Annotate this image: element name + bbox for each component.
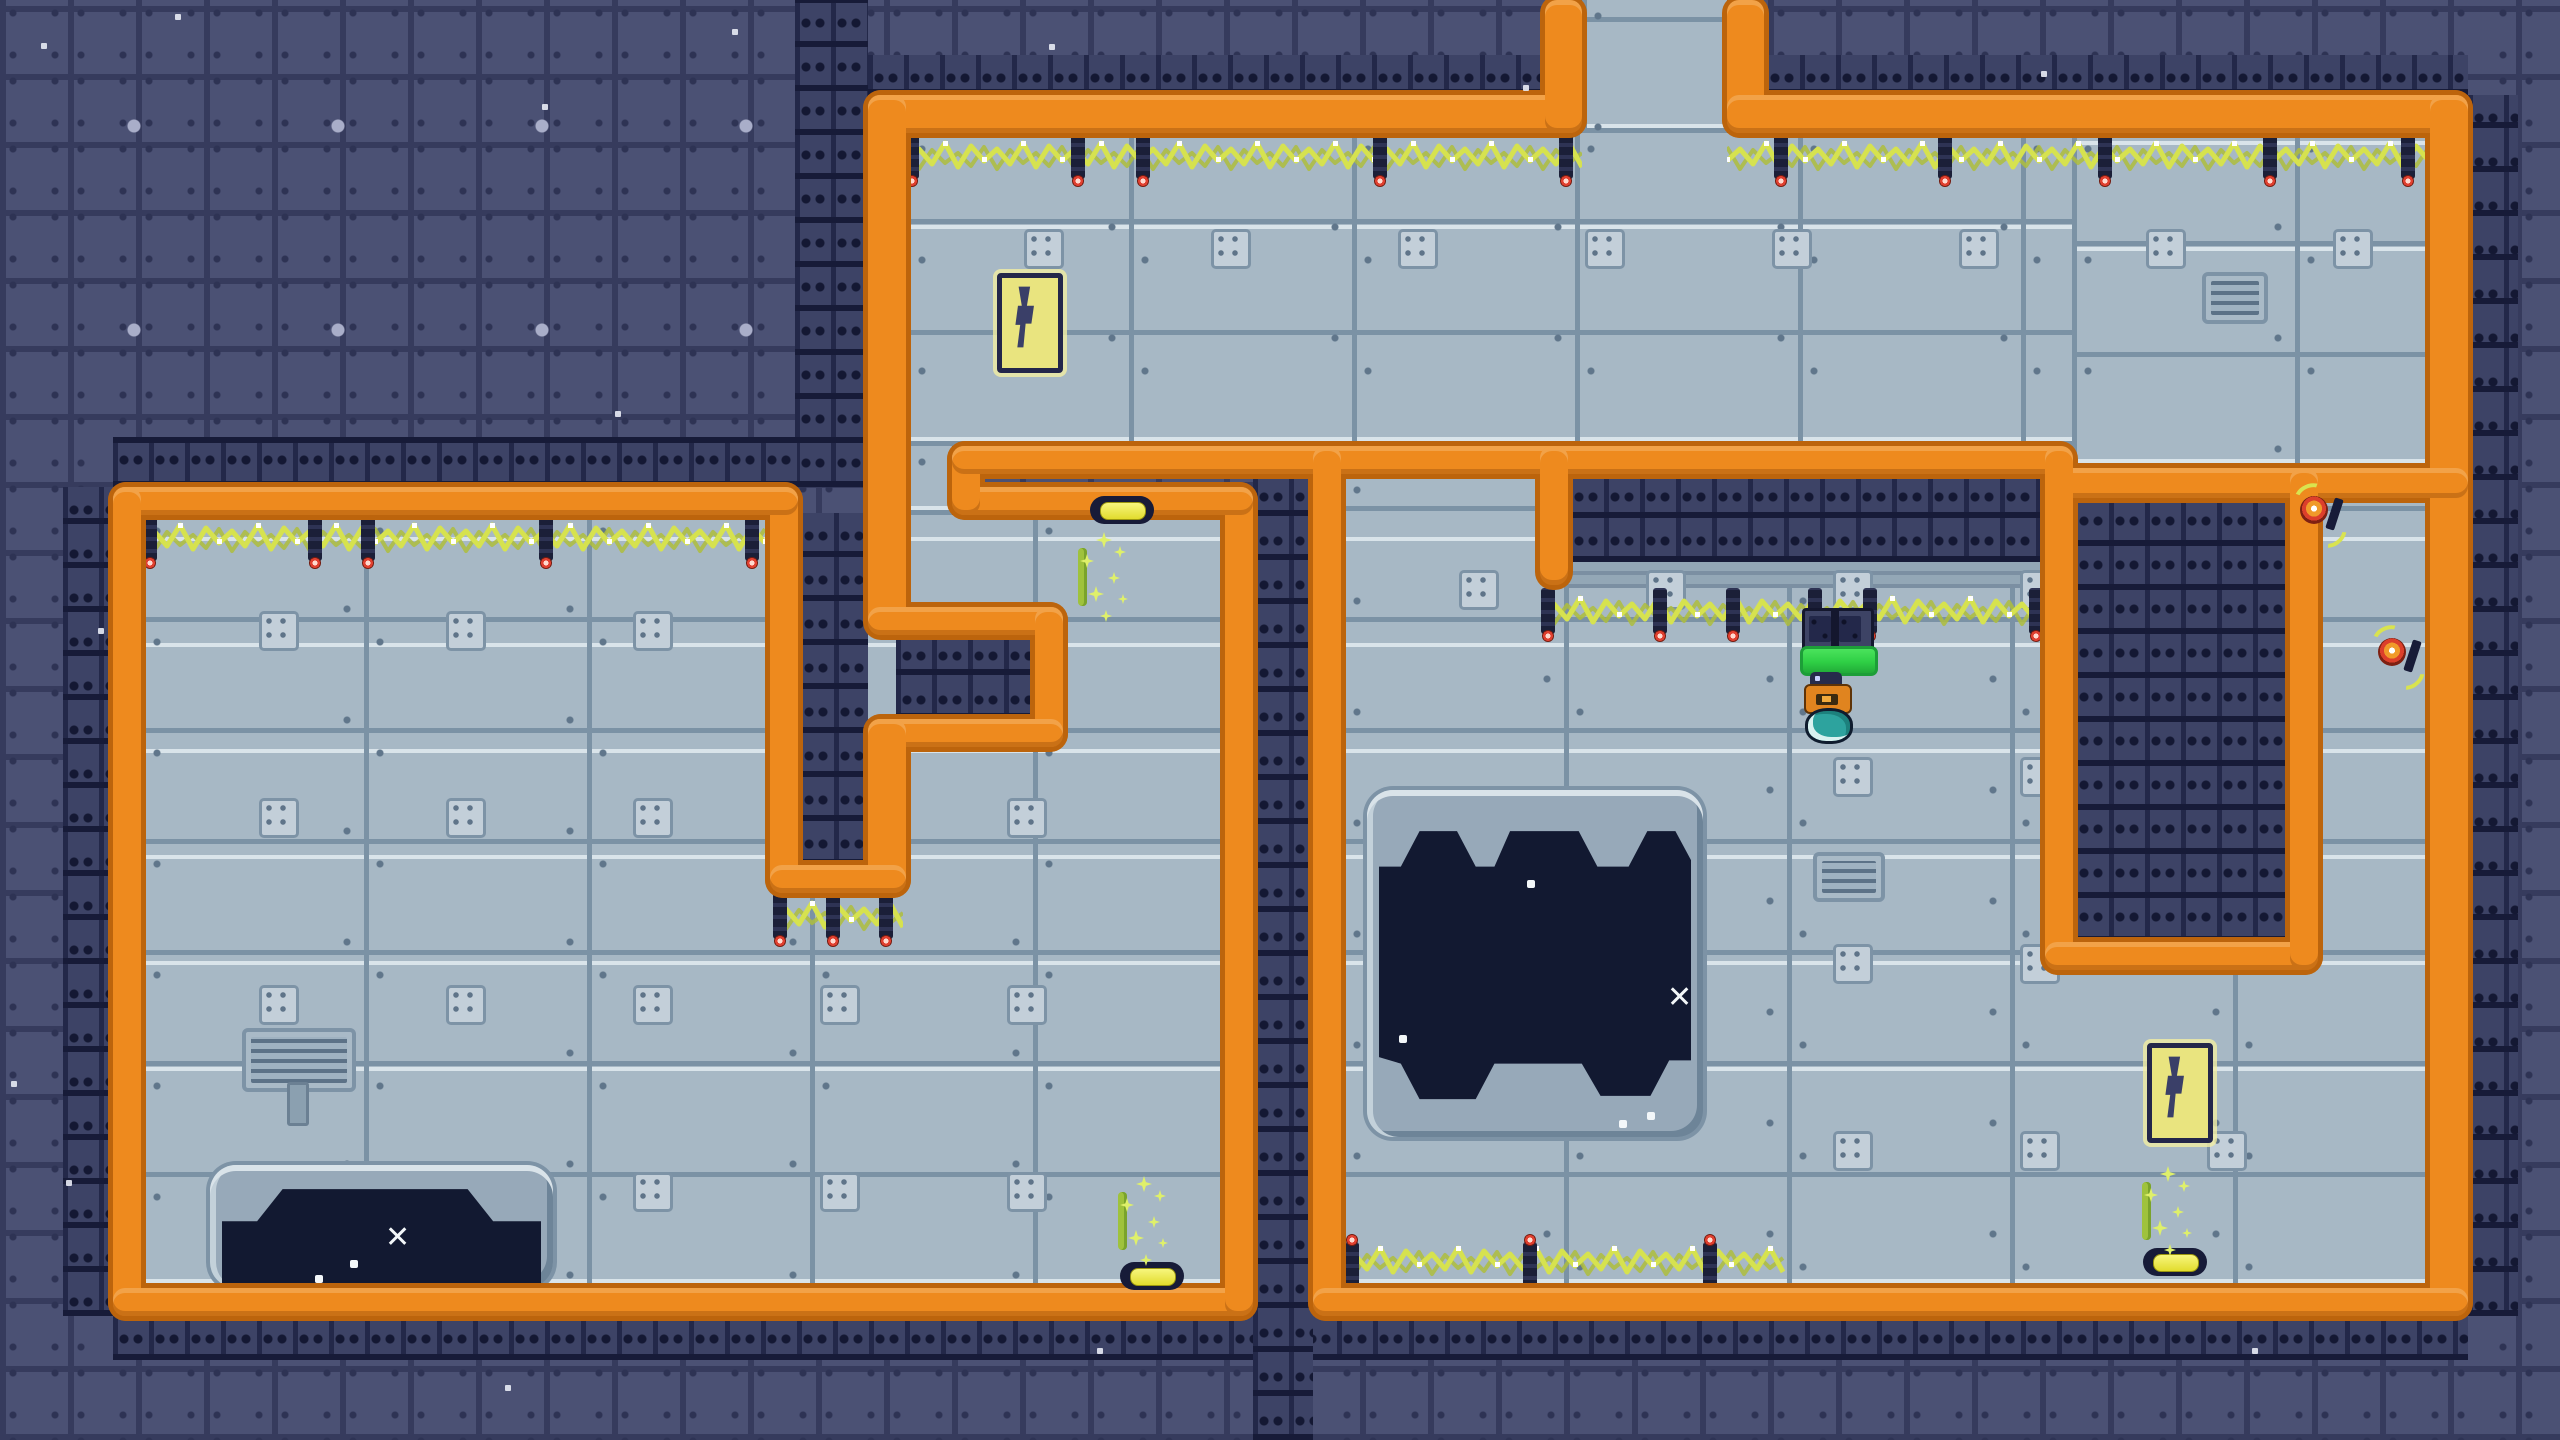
star-speckle xyxy=(41,43,47,49)
sparkle-stalk xyxy=(1078,548,1087,606)
wire-pin xyxy=(1559,133,1573,179)
high-voltage-sign xyxy=(997,273,1063,373)
orange-wall xyxy=(868,95,906,633)
wire-pin xyxy=(1653,588,1667,634)
pit-x-mark: ✕ xyxy=(385,1223,419,1255)
lightning-bolt-icon xyxy=(2159,1054,2191,1120)
wall-lamp-glow-icon xyxy=(1130,1268,1176,1286)
wire-pin xyxy=(2263,133,2277,179)
wire-pin xyxy=(1774,133,1788,179)
wall-lamp xyxy=(1090,496,1154,524)
wall-lamp-glow-icon xyxy=(1100,502,1146,520)
vent-grate xyxy=(1813,852,1885,902)
duct-channel xyxy=(113,437,798,487)
floor-junction-plate xyxy=(633,611,673,651)
spark-burst-icon xyxy=(2300,496,2328,524)
floor-junction-plate xyxy=(446,611,486,651)
floor-junction-plate xyxy=(259,985,299,1025)
wire-pin xyxy=(1136,133,1150,179)
floor-junction-plate xyxy=(633,985,673,1025)
orange-wall xyxy=(868,607,1063,635)
wall-lamp xyxy=(1120,1262,1184,1290)
wire-pin xyxy=(1373,133,1387,179)
star-speckle xyxy=(2252,1348,2258,1354)
wire-pin xyxy=(745,515,759,561)
orange-wall xyxy=(2430,95,2468,1316)
room-floor xyxy=(1582,0,1727,133)
spark-burst-icon xyxy=(2378,638,2406,666)
vent-slats-icon xyxy=(251,1037,347,1083)
floor-junction-plate xyxy=(1007,798,1047,838)
floor-junction-plate xyxy=(446,798,486,838)
pit-star-dot xyxy=(1399,1035,1407,1043)
high-voltage-sign xyxy=(2147,1043,2213,1143)
room-floor xyxy=(906,446,952,515)
floor-junction-plate xyxy=(633,1172,673,1212)
star-speckle xyxy=(1097,1348,1103,1354)
duct-channel xyxy=(2073,498,2290,942)
sparkle-stalk xyxy=(1118,1192,1127,1250)
pit-star-dot xyxy=(350,1260,358,1268)
wire-pin xyxy=(361,515,375,561)
duct-channel xyxy=(2468,95,2518,1316)
floor-junction-plate xyxy=(259,611,299,651)
wire-pin xyxy=(826,893,840,939)
floor-junction-plate xyxy=(1772,229,1812,269)
wire-pin xyxy=(1345,1242,1359,1288)
floor-junction-plate xyxy=(1959,229,1999,269)
floor-junction-plate xyxy=(2020,1131,2060,1171)
floor-junction-plate xyxy=(1459,570,1499,610)
electric-wire-hazard xyxy=(1541,588,2045,638)
vent-slats-icon xyxy=(1822,861,1876,893)
wall-lamp-glow-icon xyxy=(2153,1254,2199,1272)
vent-slats-icon xyxy=(2211,281,2259,315)
pit-star-dot xyxy=(1527,880,1535,888)
star-speckle xyxy=(175,14,181,20)
wire-pin xyxy=(539,515,553,561)
floor-junction-plate xyxy=(633,798,673,838)
orange-wall xyxy=(1727,95,2468,133)
pit-star-dot xyxy=(315,1275,323,1283)
star-speckle xyxy=(542,104,548,110)
player-belt xyxy=(1816,694,1838,705)
floor-junction-plate xyxy=(2207,1131,2247,1171)
wire-pin xyxy=(1071,133,1085,179)
game-viewport[interactable]: ✕✕ xyxy=(0,0,2560,1440)
floor-junction-plate xyxy=(259,798,299,838)
wire-pin xyxy=(1541,588,1555,634)
wall-lamp xyxy=(2143,1248,2207,1276)
orange-wall xyxy=(770,487,798,893)
floor-junction-plate xyxy=(820,985,860,1025)
vent-pipe xyxy=(287,1082,309,1126)
orange-wall xyxy=(113,487,798,515)
wire-pin xyxy=(1523,1242,1537,1288)
wire-pin xyxy=(2098,133,2112,179)
lightning-bolt-icon xyxy=(1009,284,1041,350)
floor-junction-plate xyxy=(2146,229,2186,269)
floor-junction-plate xyxy=(1585,229,1625,269)
electric-wire-hazard xyxy=(1341,1238,1791,1288)
orange-wall xyxy=(2045,446,2073,970)
floor-junction-plate xyxy=(1833,1131,1873,1171)
star-speckle xyxy=(1523,85,1529,91)
orange-wall xyxy=(868,95,1582,133)
orange-wall xyxy=(113,1288,1253,1316)
star-speckle xyxy=(2041,71,2047,77)
star-speckle xyxy=(732,29,738,35)
machine-divider xyxy=(1831,611,1839,647)
electric-wire-hazard xyxy=(906,133,1582,183)
star-speckle xyxy=(615,411,621,417)
orange-wall xyxy=(1540,446,1568,585)
pit-star-dot xyxy=(1647,1112,1655,1120)
electric-wire-hazard xyxy=(141,515,770,565)
player-bubble xyxy=(1805,708,1853,744)
wire-pin xyxy=(773,893,787,939)
wire-pin xyxy=(1726,588,1740,634)
duct-channel xyxy=(795,0,868,487)
wall-ledge xyxy=(1568,562,2045,588)
player-character xyxy=(1802,672,1850,738)
wire-pin xyxy=(1703,1242,1717,1288)
floor-junction-plate xyxy=(820,1172,860,1212)
sparkle-stalk xyxy=(2142,1182,2151,1240)
floor-junction-plate xyxy=(446,985,486,1025)
duct-channel xyxy=(896,633,1035,719)
star-speckle xyxy=(1049,44,1055,50)
star-speckle xyxy=(98,628,104,634)
orange-wall xyxy=(2045,942,2318,970)
floor-junction-plate xyxy=(2333,229,2373,269)
floor-junction-plate xyxy=(1211,229,1251,269)
orange-wall xyxy=(1545,0,1582,133)
orange-wall xyxy=(113,487,141,1316)
floor-junction-plate xyxy=(1007,1172,1047,1212)
star-speckle xyxy=(11,1081,17,1087)
orange-wall xyxy=(952,446,2072,474)
floor-junction-plate xyxy=(1007,985,1047,1025)
wire-pin xyxy=(1938,133,1952,179)
wire-pin xyxy=(2401,133,2415,179)
orange-wall xyxy=(2045,468,2468,498)
orange-wall xyxy=(2290,468,2318,970)
orange-wall xyxy=(770,865,906,893)
dungeon-map: ✕✕ xyxy=(0,0,2560,1440)
floor-junction-plate xyxy=(1833,757,1873,797)
star-speckle xyxy=(66,1180,72,1186)
duct-channel xyxy=(798,513,868,865)
electric-wire-hazard xyxy=(1727,133,2430,183)
star-speckle xyxy=(505,1385,511,1391)
machine-panel-icon xyxy=(1839,616,1861,642)
floor-junction-plate xyxy=(1398,229,1438,269)
pit-star-dot xyxy=(1619,1120,1627,1128)
floor-junction-plate xyxy=(1833,944,1873,984)
wire-pin xyxy=(308,515,322,561)
duct-channel xyxy=(1764,55,2468,95)
pit-x-mark: ✕ xyxy=(1667,983,1701,1015)
orange-wall xyxy=(1225,487,1253,1316)
duct-channel xyxy=(1568,474,2045,562)
wire-pin xyxy=(879,893,893,939)
orange-wall xyxy=(1313,446,1341,1316)
vent-grate xyxy=(2202,272,2268,324)
orange-wall xyxy=(1313,1288,2468,1316)
duct-channel xyxy=(63,487,113,1316)
duct-channel xyxy=(1253,474,1313,1440)
duct-channel xyxy=(868,55,1545,95)
machine-panel-icon xyxy=(1809,616,1831,642)
floor-junction-plate xyxy=(1024,229,1064,269)
